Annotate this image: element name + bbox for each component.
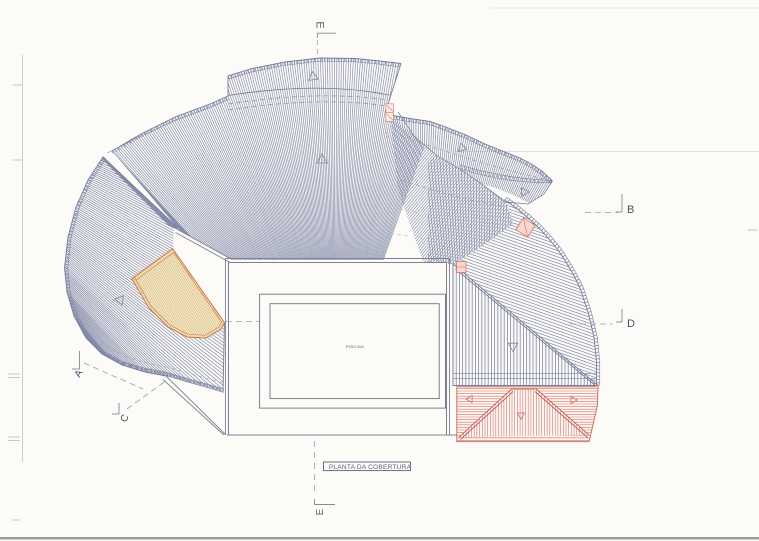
svg-text:B: B — [627, 204, 634, 216]
svg-text:E: E — [314, 21, 326, 28]
svg-text:PISCINA: PISCINA — [346, 344, 364, 349]
svg-text:D: D — [627, 318, 635, 330]
svg-text:E: E — [315, 508, 326, 515]
svg-text:PLANTA DA COBERTURA: PLANTA DA COBERTURA — [329, 464, 412, 471]
